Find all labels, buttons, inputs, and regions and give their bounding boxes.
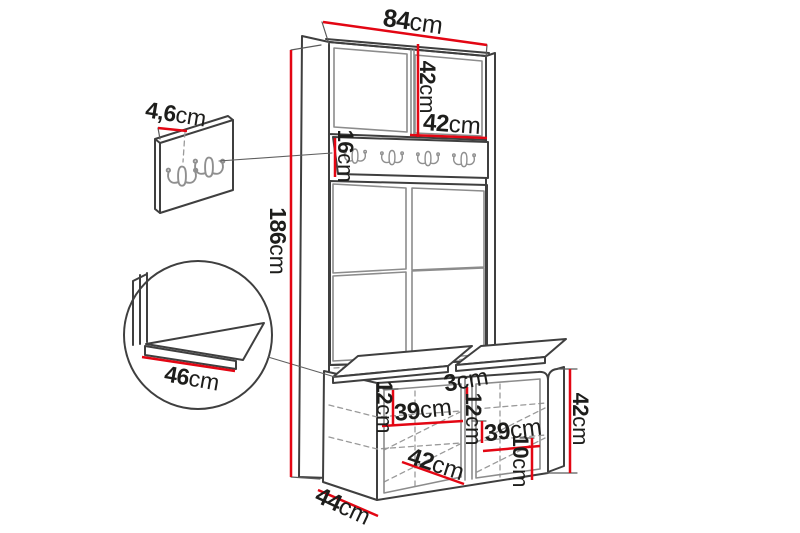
bench-right-side	[548, 367, 564, 472]
label-center-shelf-spacing: 12cm	[462, 393, 487, 446]
label-panel-thickness: 4,6cm	[144, 96, 208, 131]
label-bench-height: 42cm	[569, 393, 594, 446]
label-total-height: 186cm	[265, 207, 291, 275]
label-top-cabinet-height: 42cm	[416, 61, 441, 114]
label-door-width: 42cm	[422, 109, 481, 140]
label-hook-rail-height: 16cm	[334, 130, 359, 183]
label-total-width: 84cm	[381, 4, 444, 40]
label-bottom-shelf-height: 10cm	[509, 435, 534, 488]
bench-left-side	[323, 371, 377, 500]
detail-seat-top	[146, 323, 264, 360]
diagram-canvas: 84cm 42cm 42cm 16cm 186cm 4,6cm 46cm 44c…	[0, 0, 800, 533]
dim-line-panel-thickness	[158, 128, 187, 131]
dimension-diagram: 84cm 42cm 42cm 16cm 186cm 4,6cm 46cm 44c…	[0, 0, 800, 533]
